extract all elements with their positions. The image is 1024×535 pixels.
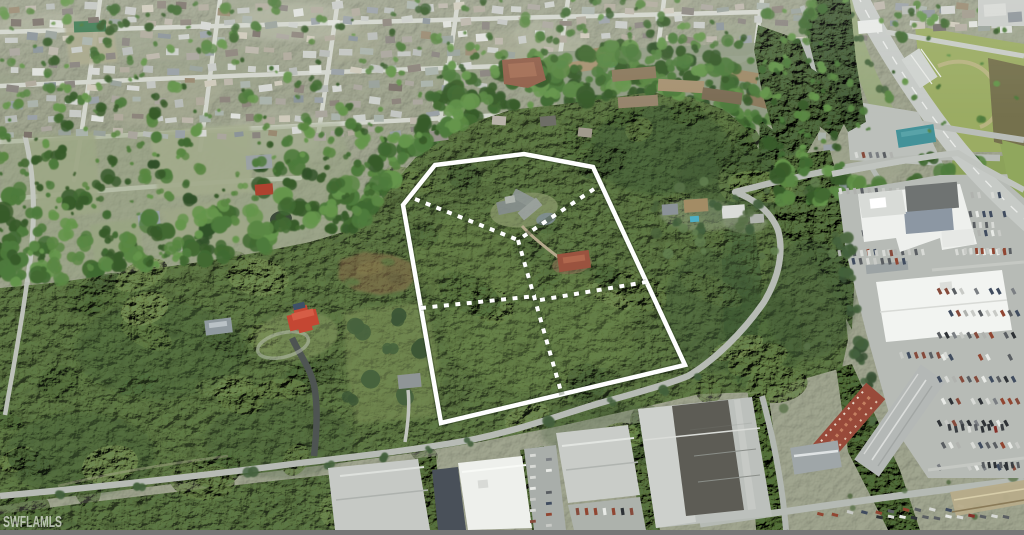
svg-text:SWFLAMLS: SWFLAMLS <box>3 514 62 530</box>
